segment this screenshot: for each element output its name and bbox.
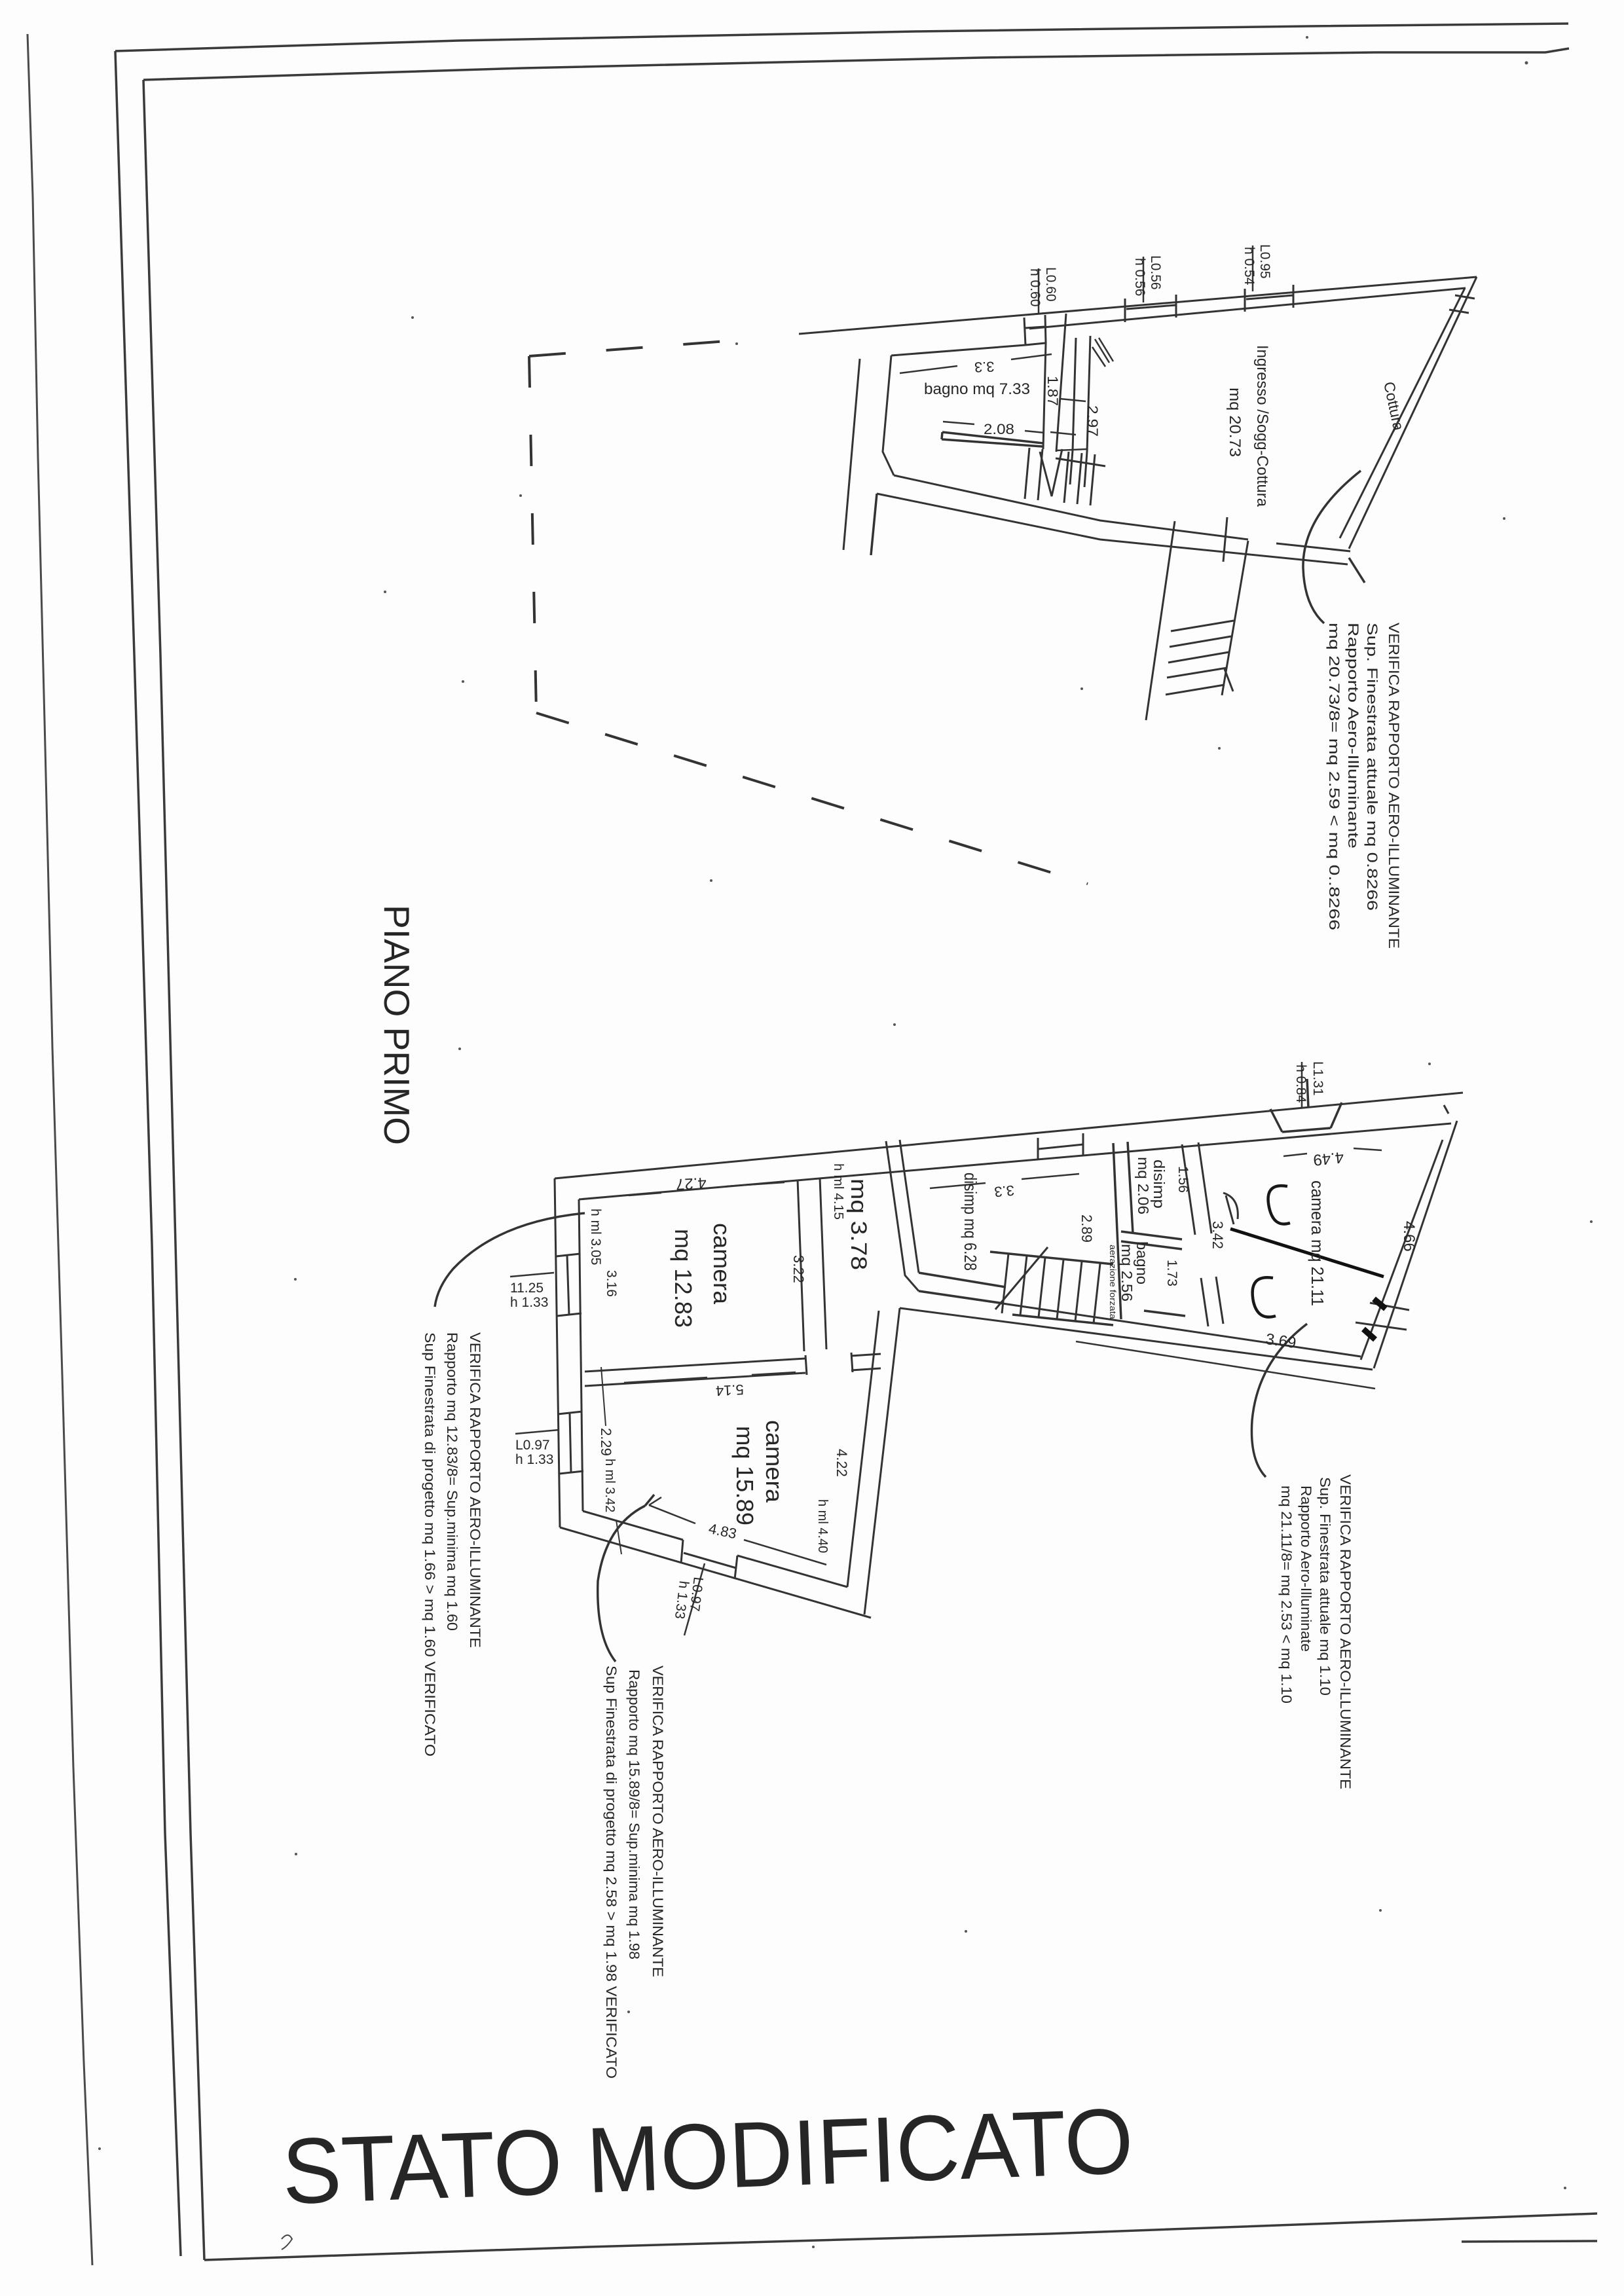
- svg-text:disimp: disimp: [1151, 1159, 1168, 1209]
- svg-text:L0.95: L0.95: [1257, 244, 1272, 279]
- svg-text:Sup Finestrata di progetto mq: Sup Finestrata di progetto mq 2.58 > mq …: [603, 1666, 619, 2079]
- svg-text:3.42: 3.42: [1209, 1221, 1226, 1249]
- svg-text:h 0.84: h 0.84: [1293, 1065, 1308, 1103]
- svg-text:h 1.33: h 1.33: [515, 1452, 553, 1467]
- svg-text:L0.56: L0.56: [1148, 255, 1163, 290]
- svg-text:1.73: 1.73: [1164, 1260, 1179, 1286]
- svg-text:aerazione forzata: aerazione forzata: [1108, 1245, 1118, 1320]
- svg-text:Rapporto mq 15.89/8= Sup.minim: Rapporto mq 15.89/8= Sup.minima mq 1.98: [626, 1669, 642, 1959]
- svg-text:h ml 3.05: h ml 3.05: [588, 1209, 603, 1265]
- svg-text:mq 20.73/8= mq 2.59 < mq 0..82: mq 20.73/8= mq 2.59 < mq 0..8266: [1326, 623, 1342, 930]
- svg-text:4.27: 4.27: [675, 1174, 707, 1193]
- svg-text:disimp mq 6.28: disimp mq 6.28: [961, 1173, 980, 1271]
- svg-text:3.22: 3.22: [790, 1255, 807, 1283]
- svg-text:2.08: 2.08: [984, 421, 1014, 437]
- svg-text:L0.60: L0.60: [1043, 267, 1058, 302]
- svg-text:3.3: 3.3: [993, 1182, 1015, 1201]
- svg-text:mq 15.89: mq 15.89: [731, 1426, 758, 1525]
- svg-text:h ml 4.40: h ml 4.40: [815, 1499, 830, 1553]
- svg-text:VERIFICA RAPPORTO AERO-ILLUMIN: VERIFICA RAPPORTO AERO-ILLUMINANTE: [650, 1666, 666, 1977]
- svg-text:2.89: 2.89: [1079, 1214, 1095, 1243]
- svg-text:Rapporto mq 12.83/8= Sup.minim: Rapporto mq 12.83/8= Sup.minima mq 1.60: [444, 1332, 460, 1631]
- svg-text:2.97: 2.97: [1084, 405, 1101, 437]
- svg-text:Rapporto Aero-Illuminate: Rapporto Aero-Illuminate: [1298, 1485, 1314, 1652]
- svg-text:camera: camera: [761, 1420, 788, 1503]
- svg-text:PIANO PRIMO: PIANO PRIMO: [377, 905, 417, 1145]
- svg-text:h ml 3.42: h ml 3.42: [602, 1459, 617, 1512]
- svg-text:mq 3.78: mq 3.78: [846, 1178, 871, 1270]
- svg-text:3.3: 3.3: [974, 358, 995, 375]
- svg-text:L0.97: L0.97: [515, 1438, 550, 1453]
- svg-text:1.56: 1.56: [1175, 1166, 1190, 1193]
- svg-text:h 0.60: h 0.60: [1027, 268, 1043, 306]
- svg-text:4.66: 4.66: [1400, 1221, 1418, 1252]
- svg-text:Sup. Finestrata attuale mq 0.8: Sup. Finestrata attuale mq 0.8266: [1364, 623, 1380, 911]
- svg-text:h ml 4.15: h ml 4.15: [831, 1163, 845, 1220]
- svg-text:Ingresso /Sogg-Cottura: Ingresso /Sogg-Cottura: [1253, 345, 1271, 507]
- svg-text:h 0.54: h 0.54: [1242, 247, 1257, 285]
- svg-text:mq 21.11/8= mq 2.53 < mq 1.10: mq 21.11/8= mq 2.53 < mq 1.10: [1278, 1485, 1295, 1704]
- svg-text:mq 20.73: mq 20.73: [1226, 388, 1244, 457]
- svg-text:Sup. Finestrata attuale mq 1.1: Sup. Finestrata attuale mq 1.10: [1317, 1477, 1333, 1696]
- svg-text:4.49: 4.49: [1312, 1148, 1344, 1169]
- svg-text:mq 12.83: mq 12.83: [670, 1229, 697, 1328]
- svg-text:2.29: 2.29: [598, 1428, 614, 1456]
- svg-text:VERIFICA RAPPORTO AERO-ILLUMIN: VERIFICA RAPPORTO AERO-ILLUMINANTE: [1386, 623, 1402, 949]
- svg-text:bagno mq 7.33: bagno mq 7.33: [924, 380, 1030, 398]
- svg-text:5.14: 5.14: [715, 1381, 744, 1399]
- svg-text:Sup Finestrata di progetto mq: Sup Finestrata di progetto mq 1.66 > mq …: [422, 1332, 438, 1757]
- svg-text:h 1.33: h 1.33: [510, 1295, 548, 1310]
- svg-text:mq 2.06: mq 2.06: [1135, 1157, 1152, 1214]
- svg-text:mq 2.56: mq 2.56: [1118, 1244, 1135, 1302]
- svg-text:3.16: 3.16: [604, 1270, 619, 1297]
- svg-text:h 0.56: h 0.56: [1132, 258, 1147, 296]
- svg-text:camera: camera: [709, 1223, 735, 1305]
- svg-text:camera mq 21.11: camera mq 21.11: [1308, 1180, 1327, 1306]
- svg-text:Rapporto Aero-Illuminante: Rapporto Aero-Illuminante: [1345, 623, 1361, 848]
- svg-text:1.87: 1.87: [1044, 376, 1061, 406]
- svg-text:11.25: 11.25: [510, 1281, 544, 1296]
- svg-text:VERIFICA RAPPORTO AERO-ILLUMIN: VERIFICA RAPPORTO AERO-ILLUMINANTE: [1337, 1474, 1354, 1789]
- svg-text:L1.31: L1.31: [1310, 1061, 1325, 1096]
- svg-text:4.22: 4.22: [834, 1449, 850, 1477]
- svg-text:VERIFICA RAPPORTO AERO-ILLUMIN: VERIFICA RAPPORTO AERO-ILLUMINANTE: [467, 1332, 483, 1648]
